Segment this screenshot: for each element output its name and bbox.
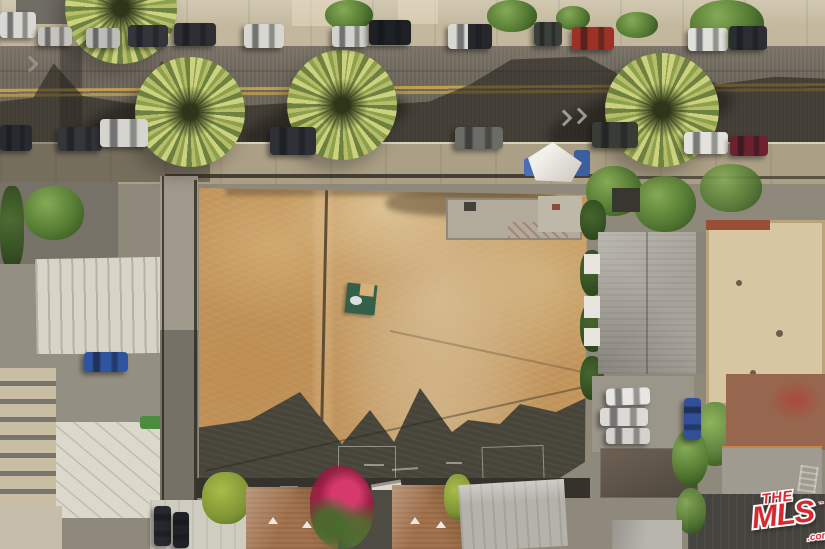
parked-truck (455, 127, 503, 149)
metal-roof (458, 479, 568, 549)
utility-shed (612, 188, 640, 212)
skylight-roof (0, 368, 56, 512)
utility-box (464, 202, 476, 211)
building-roof (35, 257, 163, 355)
parked-car (684, 132, 728, 154)
palm-tree (135, 57, 245, 167)
parked-car (684, 398, 701, 440)
parked-car (0, 125, 32, 151)
parked-van (100, 119, 148, 147)
gable-vent (410, 517, 420, 524)
parked-van (600, 408, 648, 426)
aerial-listing-photo: THE MLS ™ .com (0, 0, 825, 549)
bay-window (584, 254, 600, 274)
gable-vent (268, 517, 278, 524)
tree (0, 186, 24, 270)
gable-vent (302, 521, 312, 528)
parked-car (84, 352, 128, 372)
bay-window (584, 328, 600, 346)
pad-stain (552, 204, 560, 210)
vacant-dirt-lot (196, 182, 590, 500)
parked-car (86, 28, 120, 48)
mat-tan-flap (359, 283, 374, 296)
chalk-line (364, 464, 384, 466)
parked-car (572, 27, 614, 50)
tree (700, 164, 762, 212)
mls-watermark: THE MLS ™ .com (749, 486, 825, 549)
parked-car (244, 24, 284, 48)
building-roof (0, 506, 62, 549)
parked-car (58, 127, 102, 151)
parked-car (174, 23, 216, 46)
chalk-line (446, 462, 462, 464)
parked-car (0, 12, 36, 38)
parked-car (38, 27, 72, 46)
tree (24, 186, 84, 240)
parked-car (688, 28, 728, 51)
parked-truck (592, 122, 638, 148)
parked-car (730, 136, 768, 156)
retaining-wall (436, 184, 506, 192)
bougainvillea (310, 466, 374, 549)
parked-car (270, 127, 316, 155)
concrete-pad (538, 196, 582, 232)
parked-car (332, 26, 368, 47)
parked-car (128, 25, 168, 47)
chalk-survey-mark (481, 445, 544, 481)
parked-car (369, 20, 411, 45)
tree (634, 176, 696, 232)
parked-car (534, 22, 562, 46)
gable-roof (612, 520, 682, 549)
lime-bush (202, 472, 250, 524)
parked-car (606, 387, 651, 406)
bay-window (584, 296, 600, 318)
tree (487, 0, 537, 32)
parked-car (448, 24, 492, 49)
gable-vent (436, 521, 446, 528)
back-yard (726, 374, 825, 450)
roof-vent (736, 280, 742, 286)
roof-ridge (646, 232, 648, 374)
parapet-edge (706, 220, 770, 230)
mls-watermark-com: .com (807, 530, 825, 544)
parked-truck (606, 428, 650, 444)
parked-car (729, 26, 767, 50)
walkway-shadow (160, 330, 198, 504)
mls-watermark-mls: MLS (750, 495, 825, 531)
parked-car (173, 512, 189, 548)
roof-vent (776, 330, 783, 337)
alley (696, 232, 706, 374)
mls-watermark-tm: ™ (818, 501, 825, 508)
hip-roof-house (598, 232, 696, 374)
parked-car (154, 506, 171, 546)
planter-shrub (616, 12, 658, 38)
